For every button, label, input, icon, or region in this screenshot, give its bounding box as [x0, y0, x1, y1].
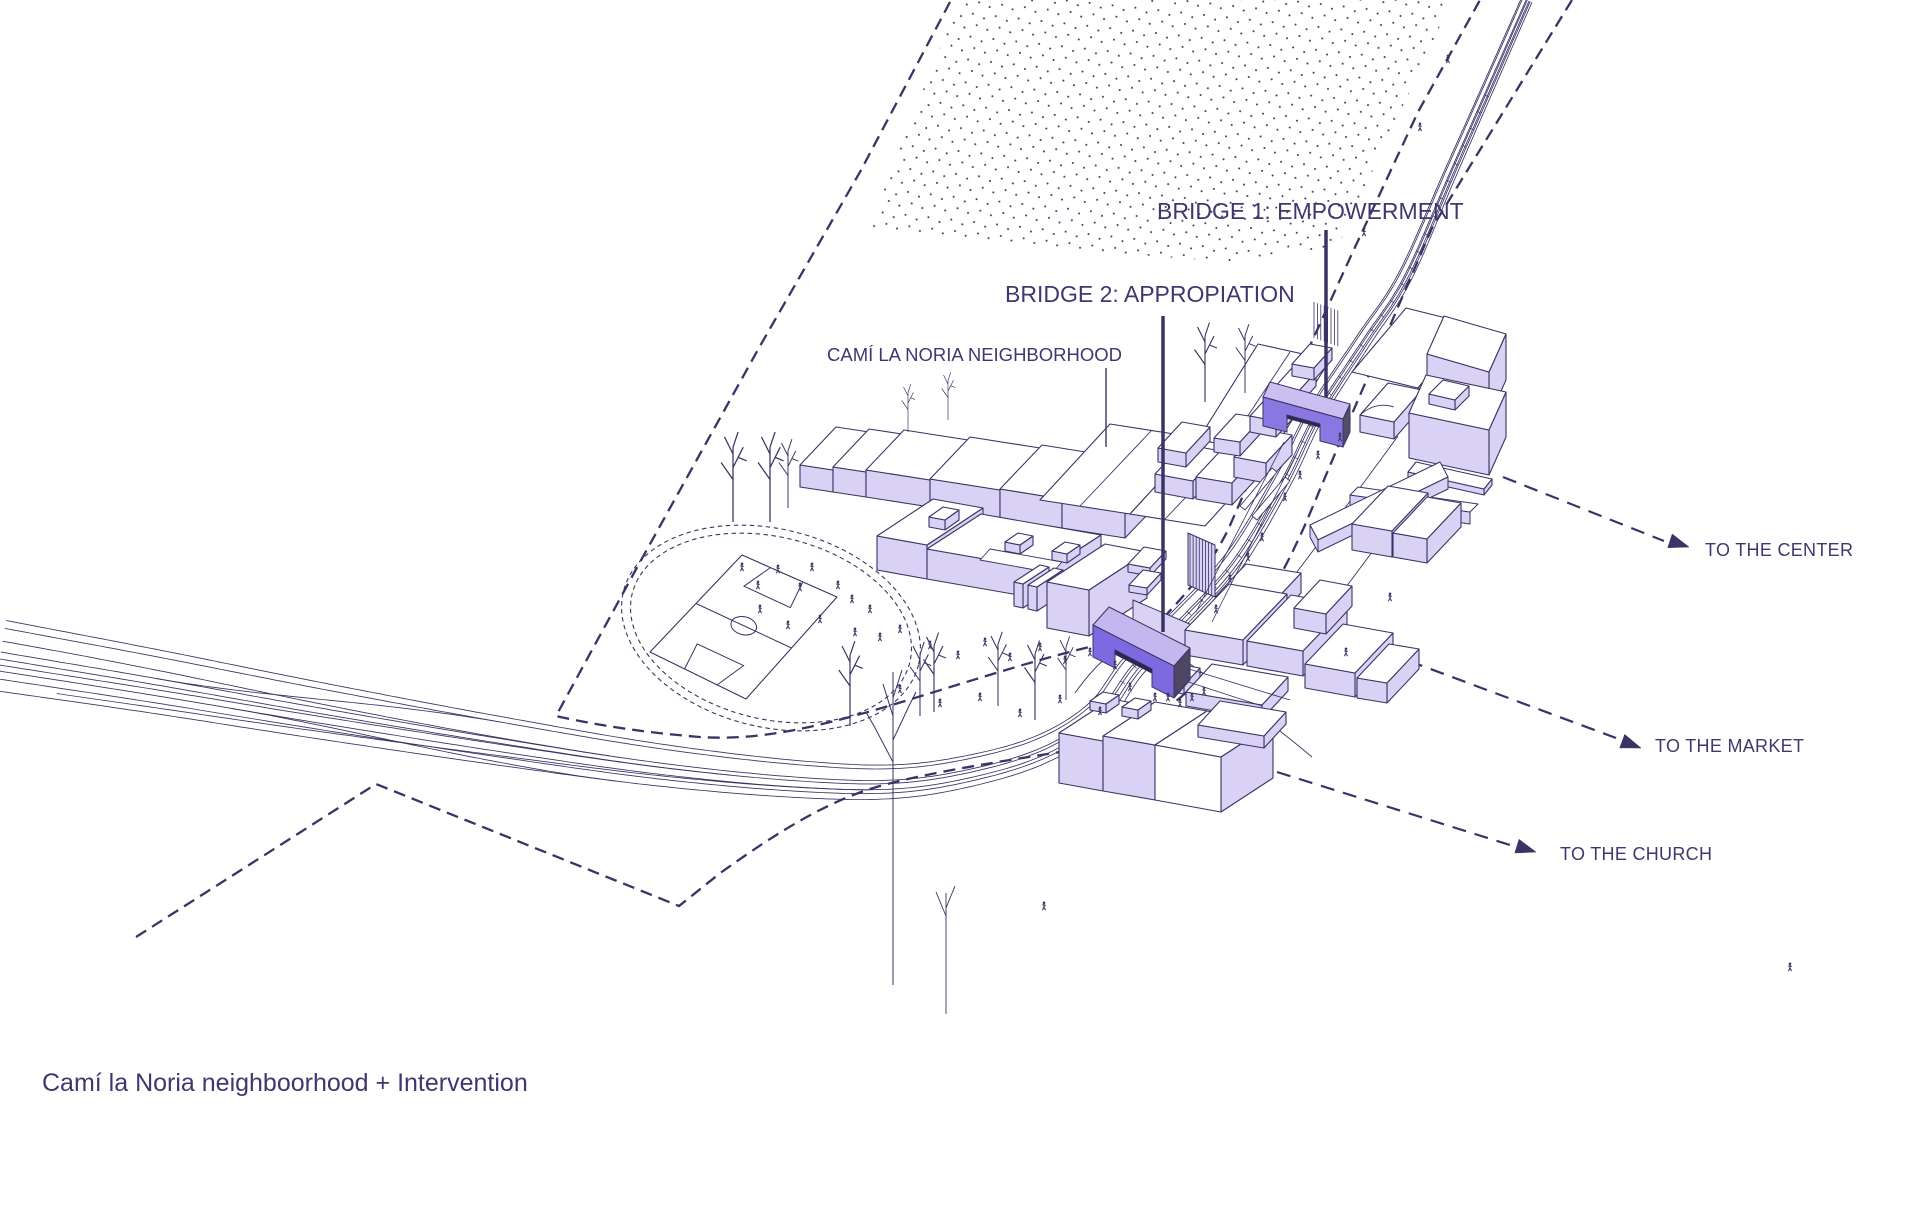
svg-text:TO THE CHURCH: TO THE CHURCH — [1560, 844, 1712, 864]
svg-text:TO THE MARKET: TO THE MARKET — [1655, 736, 1804, 756]
svg-text:BRIDGE 1: EMPOWERMENT: BRIDGE 1: EMPOWERMENT — [1157, 198, 1464, 224]
svg-text:CAMÍ LA NORIA NEIGHBORHOOD: CAMÍ LA NORIA NEIGHBORHOOD — [827, 344, 1122, 365]
svg-text:Camí la Noria neighboorhood +: Camí la Noria neighboorhood + Interventi… — [42, 1069, 528, 1097]
svg-text:BRIDGE 2: APPROPIATION: BRIDGE 2: APPROPIATION — [1005, 281, 1295, 307]
svg-text:TO THE CENTER: TO THE CENTER — [1705, 540, 1853, 560]
